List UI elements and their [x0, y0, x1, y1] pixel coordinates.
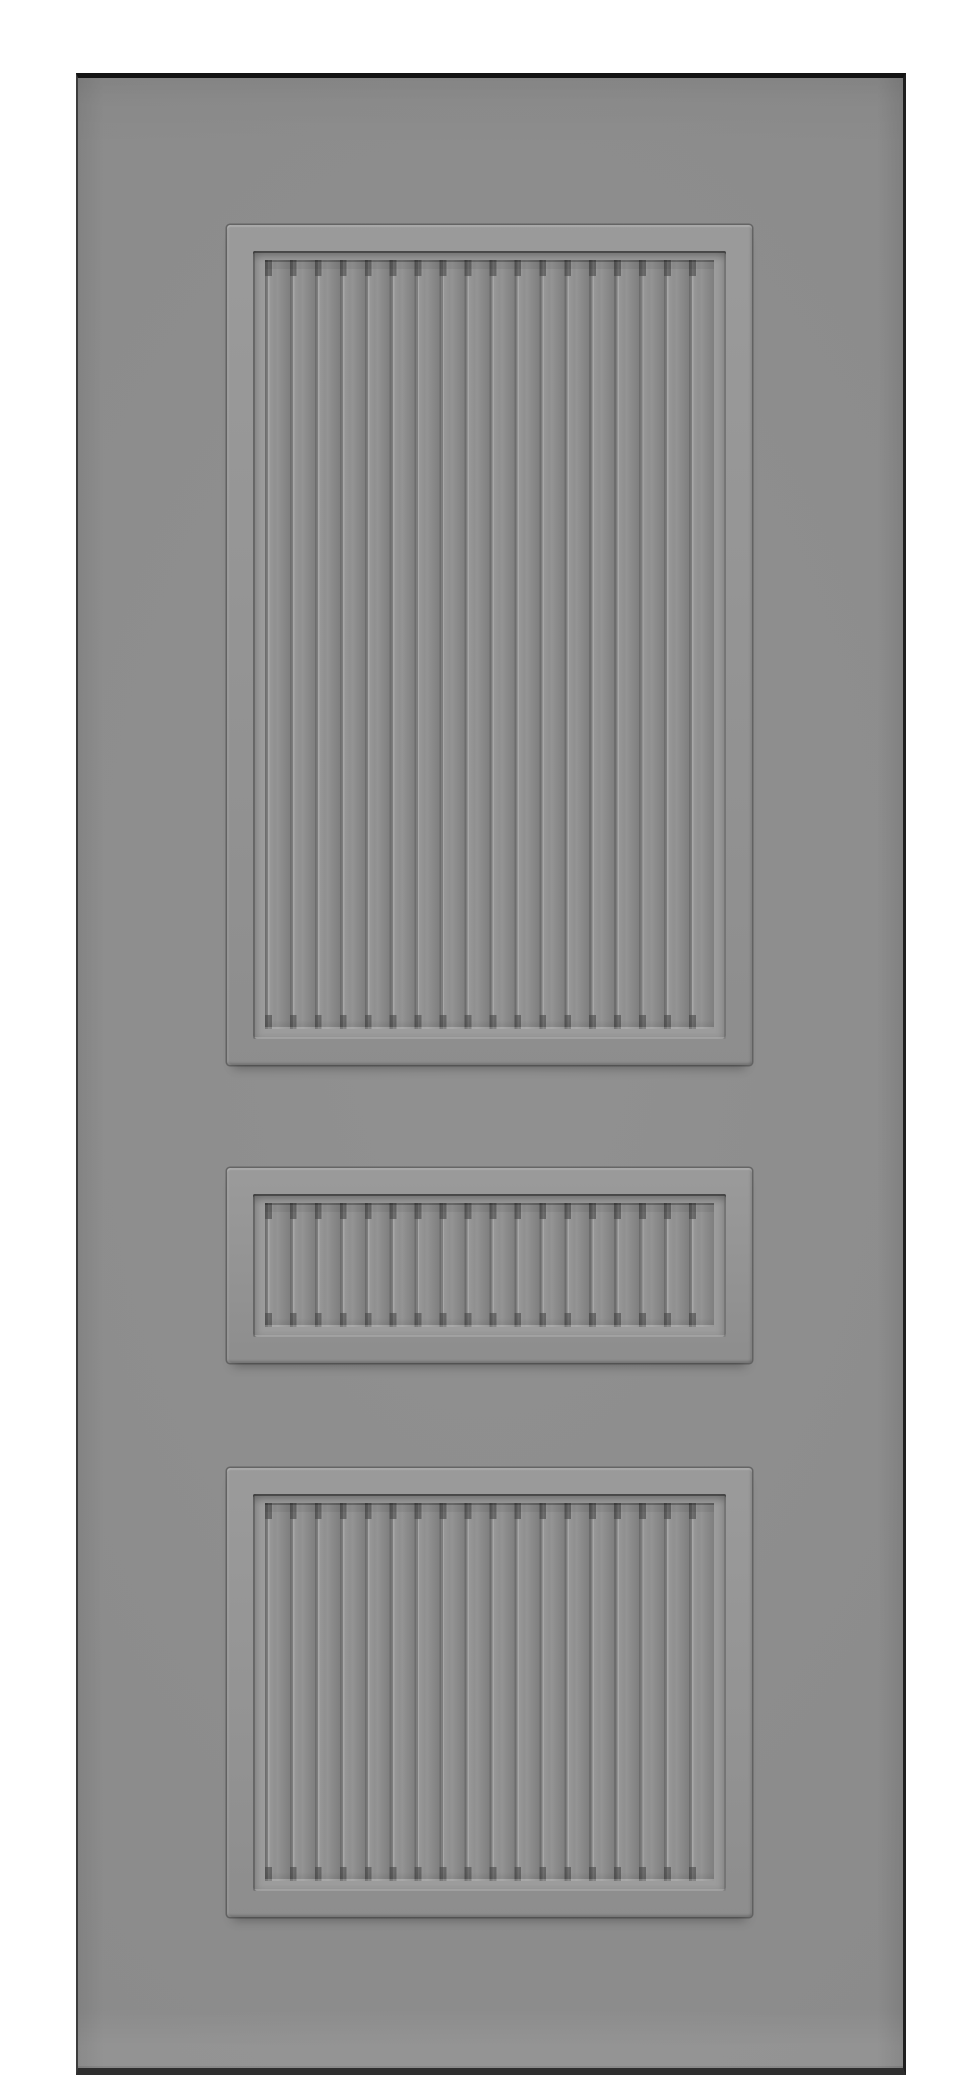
- panel-recess: [253, 251, 726, 1039]
- door-panel-middle: [227, 1168, 752, 1363]
- door-panel-bottom: [227, 1468, 752, 1917]
- door-panel-top: [227, 225, 752, 1065]
- panel-beadboard-slats: [265, 1203, 714, 1327]
- panel-recess: [253, 1494, 726, 1891]
- door-slab: [76, 73, 906, 2075]
- panel-recess: [253, 1194, 726, 1337]
- panel-beadboard-slats: [265, 260, 714, 1029]
- panel-beadboard-slats: [265, 1503, 714, 1881]
- photo-background: [0, 0, 980, 2100]
